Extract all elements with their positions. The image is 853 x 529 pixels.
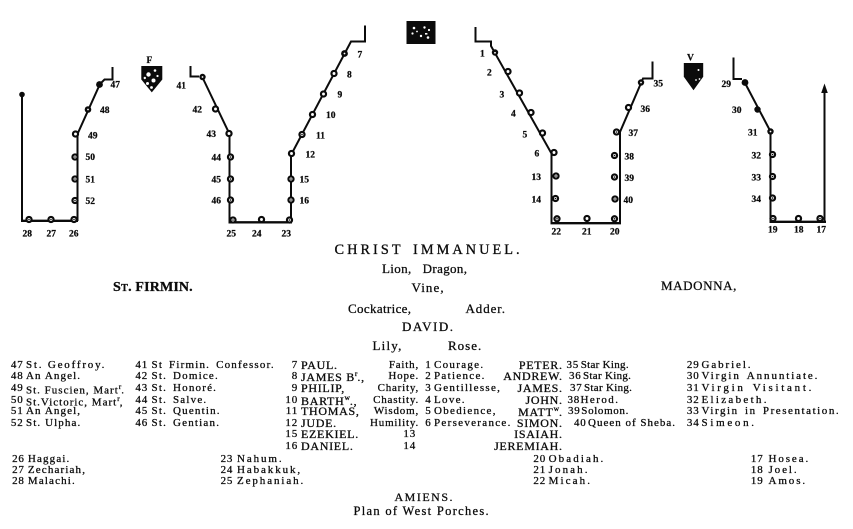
svg-text:4: 4 (511, 110, 516, 120)
svg-text:2: 2 (487, 69, 492, 79)
svg-text:24: 24 (252, 230, 262, 240)
svg-text:36: 36 (641, 105, 651, 115)
svg-text:28: 28 (23, 230, 33, 240)
svg-text:25: 25 (227, 230, 237, 240)
svg-text:20: 20 (610, 228, 620, 238)
svg-text:30: 30 (732, 106, 742, 116)
svg-text:47: 47 (111, 81, 121, 91)
svg-text:37: 37 (629, 129, 639, 139)
svg-text:21: 21 (582, 228, 592, 238)
svg-text:39: 39 (625, 174, 635, 184)
svg-text:26: 26 (69, 230, 79, 240)
svg-text:15: 15 (300, 176, 310, 186)
svg-text:35: 35 (654, 80, 664, 90)
svg-text:18: 18 (794, 226, 804, 236)
svg-text:33: 33 (752, 174, 762, 184)
svg-text:23: 23 (282, 230, 292, 240)
svg-text:F: F (147, 56, 153, 66)
svg-text:5: 5 (523, 131, 528, 141)
svg-text:17: 17 (817, 226, 827, 236)
svg-text:7: 7 (358, 51, 363, 61)
svg-text:38: 38 (625, 153, 635, 163)
svg-text:29: 29 (722, 80, 732, 90)
svg-text:32: 32 (752, 152, 762, 162)
svg-text:42: 42 (193, 106, 203, 116)
svg-text:1: 1 (480, 50, 485, 60)
svg-text:52: 52 (86, 197, 96, 207)
svg-text:49: 49 (88, 132, 98, 142)
svg-text:44: 44 (212, 154, 222, 164)
svg-text:12: 12 (306, 151, 316, 161)
svg-text:41: 41 (177, 82, 187, 92)
svg-text:3: 3 (500, 91, 505, 101)
svg-text:6: 6 (535, 150, 540, 160)
svg-text:40: 40 (624, 196, 634, 206)
svg-text:34: 34 (752, 195, 762, 205)
svg-text:46: 46 (212, 197, 222, 207)
svg-text:16: 16 (300, 197, 310, 207)
svg-text:9: 9 (338, 91, 343, 101)
svg-text:43: 43 (207, 130, 217, 140)
svg-text:48: 48 (100, 106, 110, 116)
svg-text:8: 8 (347, 71, 352, 81)
svg-text:50: 50 (86, 153, 96, 163)
svg-text:14: 14 (532, 196, 542, 206)
svg-text:19: 19 (768, 226, 778, 236)
svg-text:V: V (687, 54, 694, 64)
svg-text:51: 51 (86, 176, 96, 186)
svg-text:10: 10 (326, 111, 336, 121)
svg-text:13: 13 (532, 173, 542, 183)
svg-text:11: 11 (316, 132, 325, 142)
svg-text:31: 31 (748, 129, 758, 139)
svg-text:45: 45 (212, 176, 222, 186)
svg-text:22: 22 (552, 228, 562, 238)
svg-text:27: 27 (47, 230, 57, 240)
